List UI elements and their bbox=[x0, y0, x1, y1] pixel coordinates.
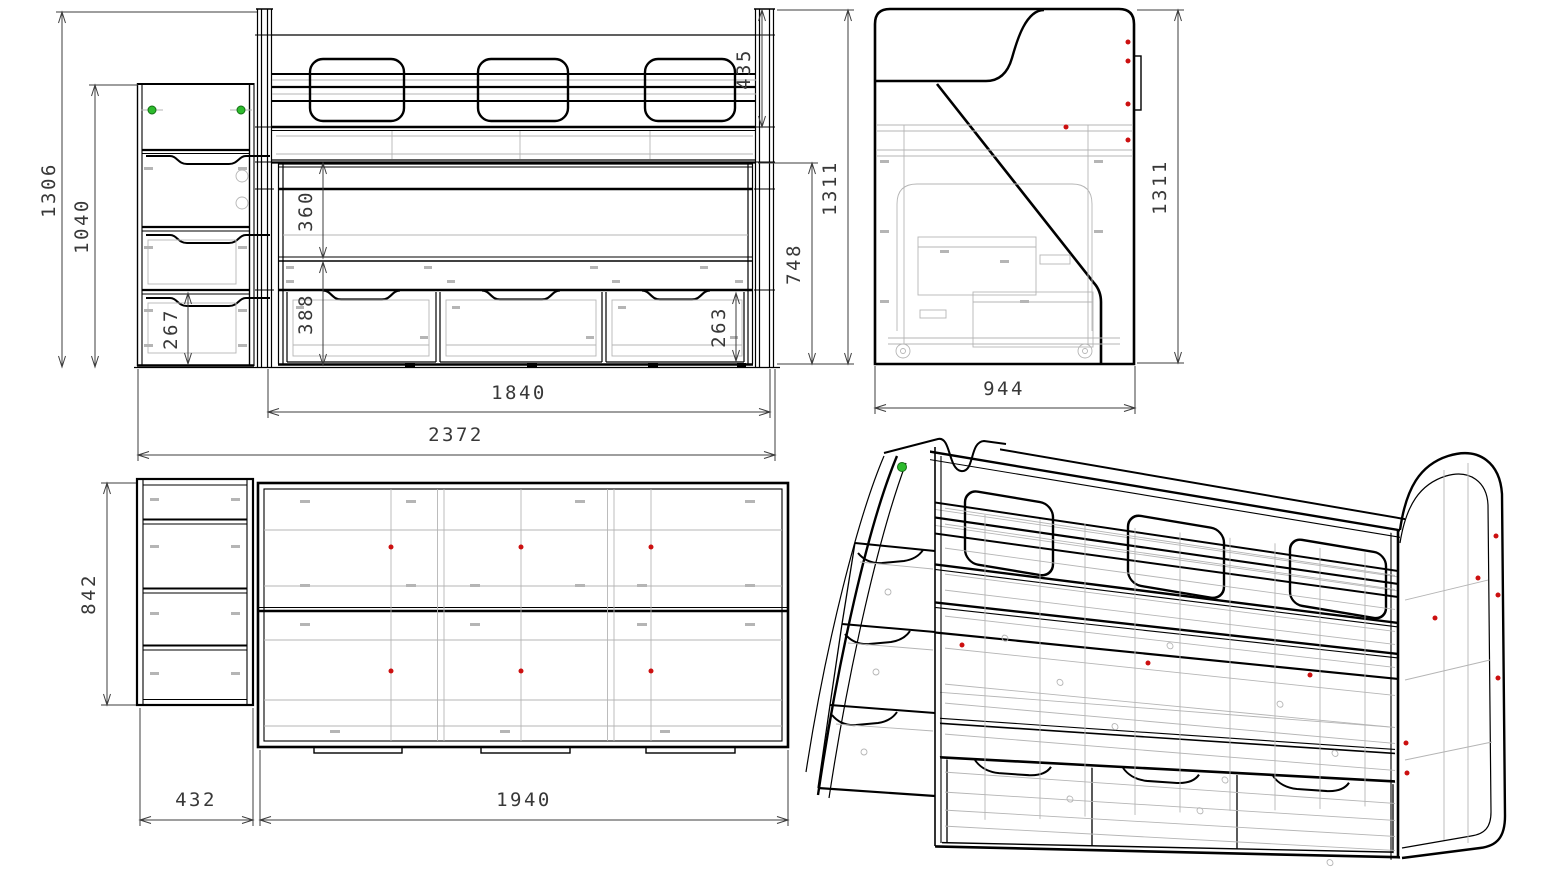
dim-front-stair-drawer-height: 267 bbox=[160, 308, 182, 350]
fastener-marker-red bbox=[1126, 138, 1131, 143]
iso-rail-cutout bbox=[1290, 538, 1386, 620]
fastener-marker-red bbox=[1126, 102, 1131, 107]
fastener-marker-red bbox=[389, 669, 394, 674]
dim-front-overall-length: 2372 bbox=[428, 424, 484, 446]
assembly-check-marker-green bbox=[898, 463, 907, 472]
fastener-marker-red bbox=[1126, 40, 1131, 45]
top-bed-body bbox=[258, 483, 788, 753]
iso-bed-body bbox=[930, 438, 1405, 872]
rail-cutout bbox=[478, 59, 568, 121]
bed-drawer-handle bbox=[323, 291, 400, 300]
front-stair-unit bbox=[137, 83, 270, 366]
stair-drawer-handle bbox=[146, 298, 270, 306]
dim-front-bunk-opening: 360 bbox=[295, 190, 317, 232]
front-view: 1306 1040 267 435 360 388 263 748 bbox=[38, 9, 854, 461]
dim-top-bed-width: 1940 bbox=[496, 789, 552, 811]
rail-cutout bbox=[645, 59, 735, 121]
fastener-marker-red bbox=[519, 545, 524, 550]
assembly-check-marker-green bbox=[237, 106, 245, 114]
top-stair-unit bbox=[137, 479, 253, 705]
dim-front-drawer-section: 388 bbox=[295, 293, 317, 335]
dim-front-bed-overall-height: 1311 bbox=[819, 160, 841, 216]
side-dimensions: 1311 944 bbox=[875, 10, 1184, 414]
cad-drawing-page: 1306 1040 267 435 360 388 263 748 bbox=[0, 0, 1549, 872]
dim-front-bed-base-height: 748 bbox=[783, 243, 805, 285]
dim-top-stair-width: 432 bbox=[175, 789, 217, 811]
fastener-marker-red bbox=[649, 545, 654, 550]
bed-drawer-handle bbox=[642, 291, 710, 300]
top-view: 842 432 1940 bbox=[78, 479, 788, 826]
dim-front-rail-height: 435 bbox=[733, 48, 755, 90]
fastener-marker-red bbox=[1064, 125, 1069, 130]
side-panel-step-contour bbox=[876, 10, 1044, 81]
bed-drawer-handle bbox=[482, 291, 560, 300]
dim-front-drawer-front: 263 bbox=[708, 306, 730, 348]
assembly-check-marker-green bbox=[148, 106, 156, 114]
iso-drawer-handle bbox=[1273, 770, 1349, 798]
fastener-marker-red bbox=[519, 669, 524, 674]
isometric-view bbox=[806, 438, 1505, 872]
side-panel-diagonal-edge bbox=[937, 84, 1101, 363]
fastener-marker-red bbox=[389, 545, 394, 550]
side-panel-outline bbox=[875, 9, 1134, 364]
rail-cutout bbox=[310, 59, 404, 121]
technical-drawing-canvas: 1306 1040 267 435 360 388 263 748 bbox=[0, 0, 1549, 872]
dim-front-overall-height: 1306 bbox=[38, 162, 60, 218]
dim-front-bed-length: 1840 bbox=[491, 382, 547, 404]
iso-stair-drawer-handle bbox=[858, 550, 923, 563]
dim-side-overall-height: 1311 bbox=[1149, 159, 1171, 215]
front-lower-bunk bbox=[278, 163, 753, 367]
side-view: 1311 944 bbox=[875, 9, 1184, 414]
top-dimensions: 842 432 1940 bbox=[78, 483, 788, 826]
stair-drawer-handle bbox=[146, 156, 270, 164]
iso-stair-drawer-handle bbox=[845, 631, 910, 644]
iso-end-panel bbox=[1400, 453, 1505, 858]
stair-drawer-handle bbox=[146, 235, 270, 243]
dim-side-overall-depth: 944 bbox=[983, 378, 1025, 400]
front-guard-rail bbox=[272, 35, 756, 163]
dim-top-depth: 842 bbox=[78, 573, 100, 615]
fastener-marker-red bbox=[649, 669, 654, 674]
iso-stair-unit bbox=[806, 439, 1006, 846]
fastener-marker-red bbox=[1126, 59, 1131, 64]
dim-front-stair-height: 1040 bbox=[71, 198, 93, 254]
